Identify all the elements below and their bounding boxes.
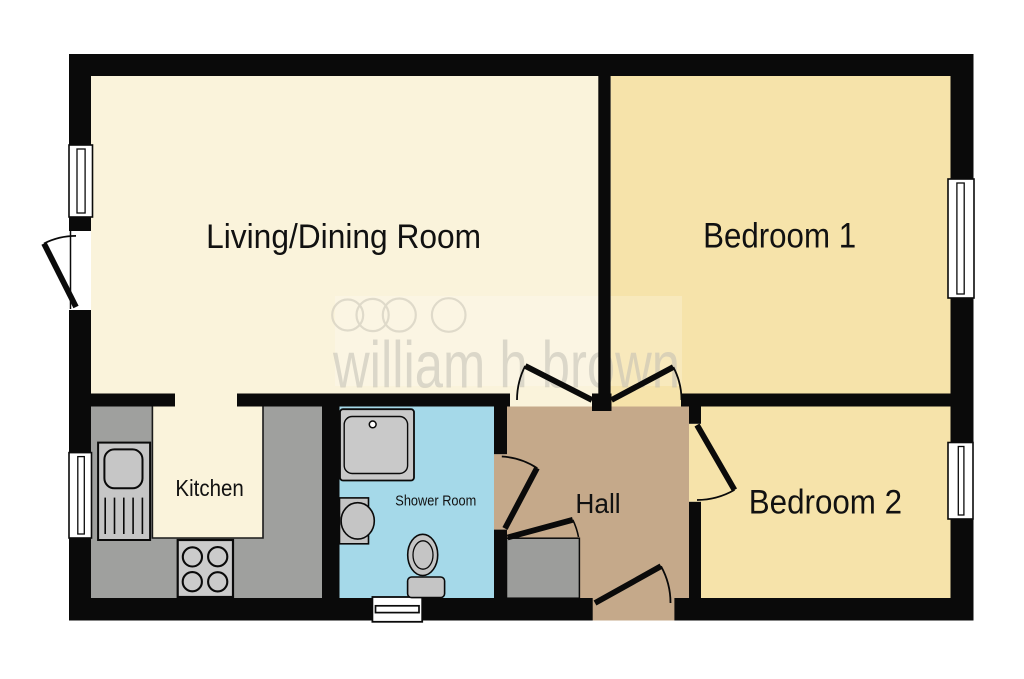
svg-text:Hall: Hall [575, 488, 620, 519]
svg-text:Bedroom 2: Bedroom 2 [749, 484, 902, 522]
svg-text:Shower Room: Shower Room [395, 494, 476, 510]
svg-text:Living/Dining Room: Living/Dining Room [206, 218, 481, 256]
svg-text:Bedroom 1: Bedroom 1 [703, 217, 856, 256]
svg-text:Kitchen: Kitchen [175, 475, 243, 501]
